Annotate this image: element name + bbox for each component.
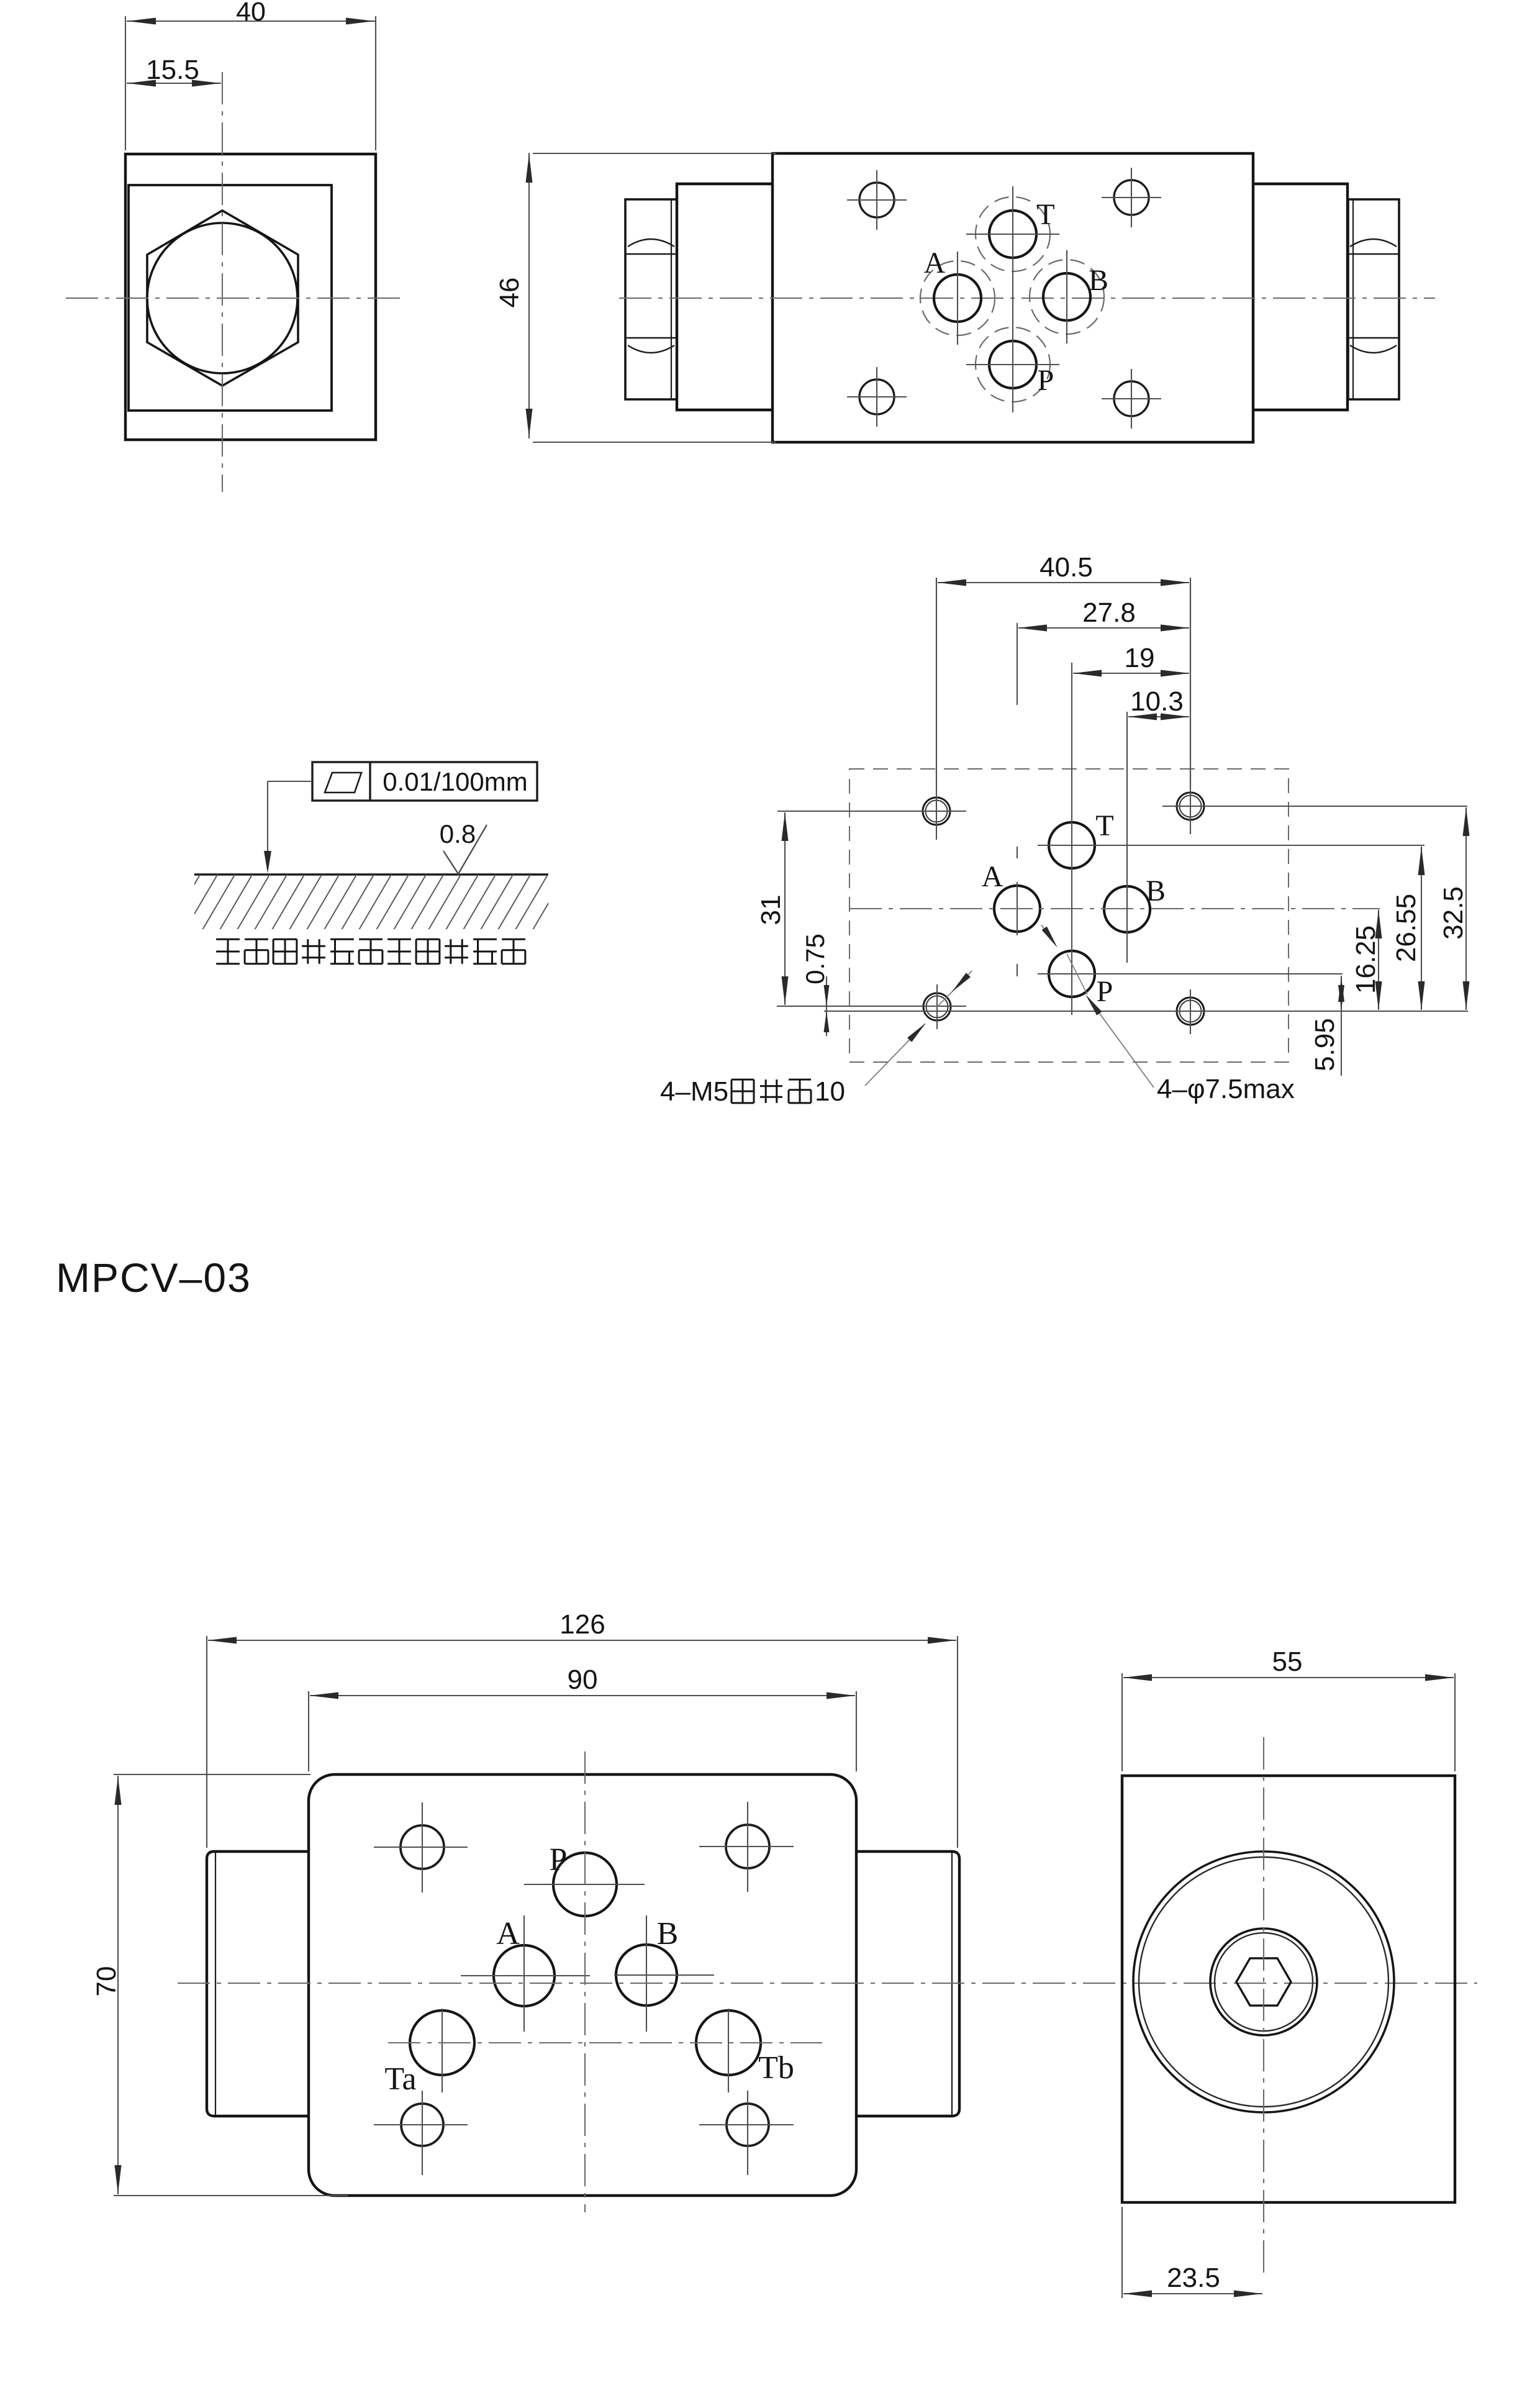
- svg-text:B: B: [657, 1916, 679, 1951]
- svg-text:26.55: 26.55: [1391, 894, 1421, 962]
- svg-text:4–φ7.5max: 4–φ7.5max: [1157, 1074, 1295, 1104]
- svg-text:126: 126: [559, 1609, 605, 1640]
- svg-text:4–M5: 4–M5: [660, 1076, 728, 1107]
- svg-text:46: 46: [494, 278, 525, 308]
- svg-text:P: P: [1038, 364, 1054, 397]
- svg-text:23.5: 23.5: [1167, 2263, 1220, 2293]
- svg-text:0.01/100mm: 0.01/100mm: [383, 767, 527, 796]
- svg-text:0.8: 0.8: [440, 819, 476, 848]
- svg-text:Ta: Ta: [384, 2061, 416, 2097]
- svg-text:A: A: [496, 1916, 520, 1951]
- svg-text:16.25: 16.25: [1351, 925, 1381, 994]
- svg-text:10: 10: [815, 1076, 845, 1107]
- svg-text:40: 40: [236, 0, 266, 27]
- svg-text:T: T: [1036, 198, 1054, 231]
- svg-text:Tb: Tb: [758, 2050, 794, 2086]
- svg-text:B: B: [1089, 264, 1108, 297]
- svg-text:B: B: [1146, 874, 1166, 907]
- svg-text:15.5: 15.5: [146, 55, 199, 85]
- svg-text:40.5: 40.5: [1039, 552, 1093, 583]
- svg-text:P: P: [550, 1842, 568, 1878]
- svg-text:5.95: 5.95: [1310, 1018, 1340, 1071]
- svg-text:P: P: [1097, 975, 1113, 1008]
- svg-text:10.3: 10.3: [1130, 686, 1184, 717]
- svg-text:27.8: 27.8: [1082, 597, 1136, 628]
- svg-text:T: T: [1095, 809, 1113, 842]
- svg-text:55: 55: [1272, 1647, 1303, 1677]
- svg-text:31: 31: [756, 895, 786, 925]
- svg-text:A: A: [924, 247, 946, 279]
- svg-text:90: 90: [568, 1665, 598, 1695]
- svg-text:70: 70: [91, 1966, 122, 1997]
- svg-text:MPCV–03: MPCV–03: [56, 1255, 251, 1301]
- svg-text:19: 19: [1125, 643, 1155, 673]
- svg-text:32.5: 32.5: [1438, 886, 1469, 940]
- svg-text:0.75: 0.75: [800, 934, 830, 984]
- svg-text:A: A: [982, 860, 1003, 893]
